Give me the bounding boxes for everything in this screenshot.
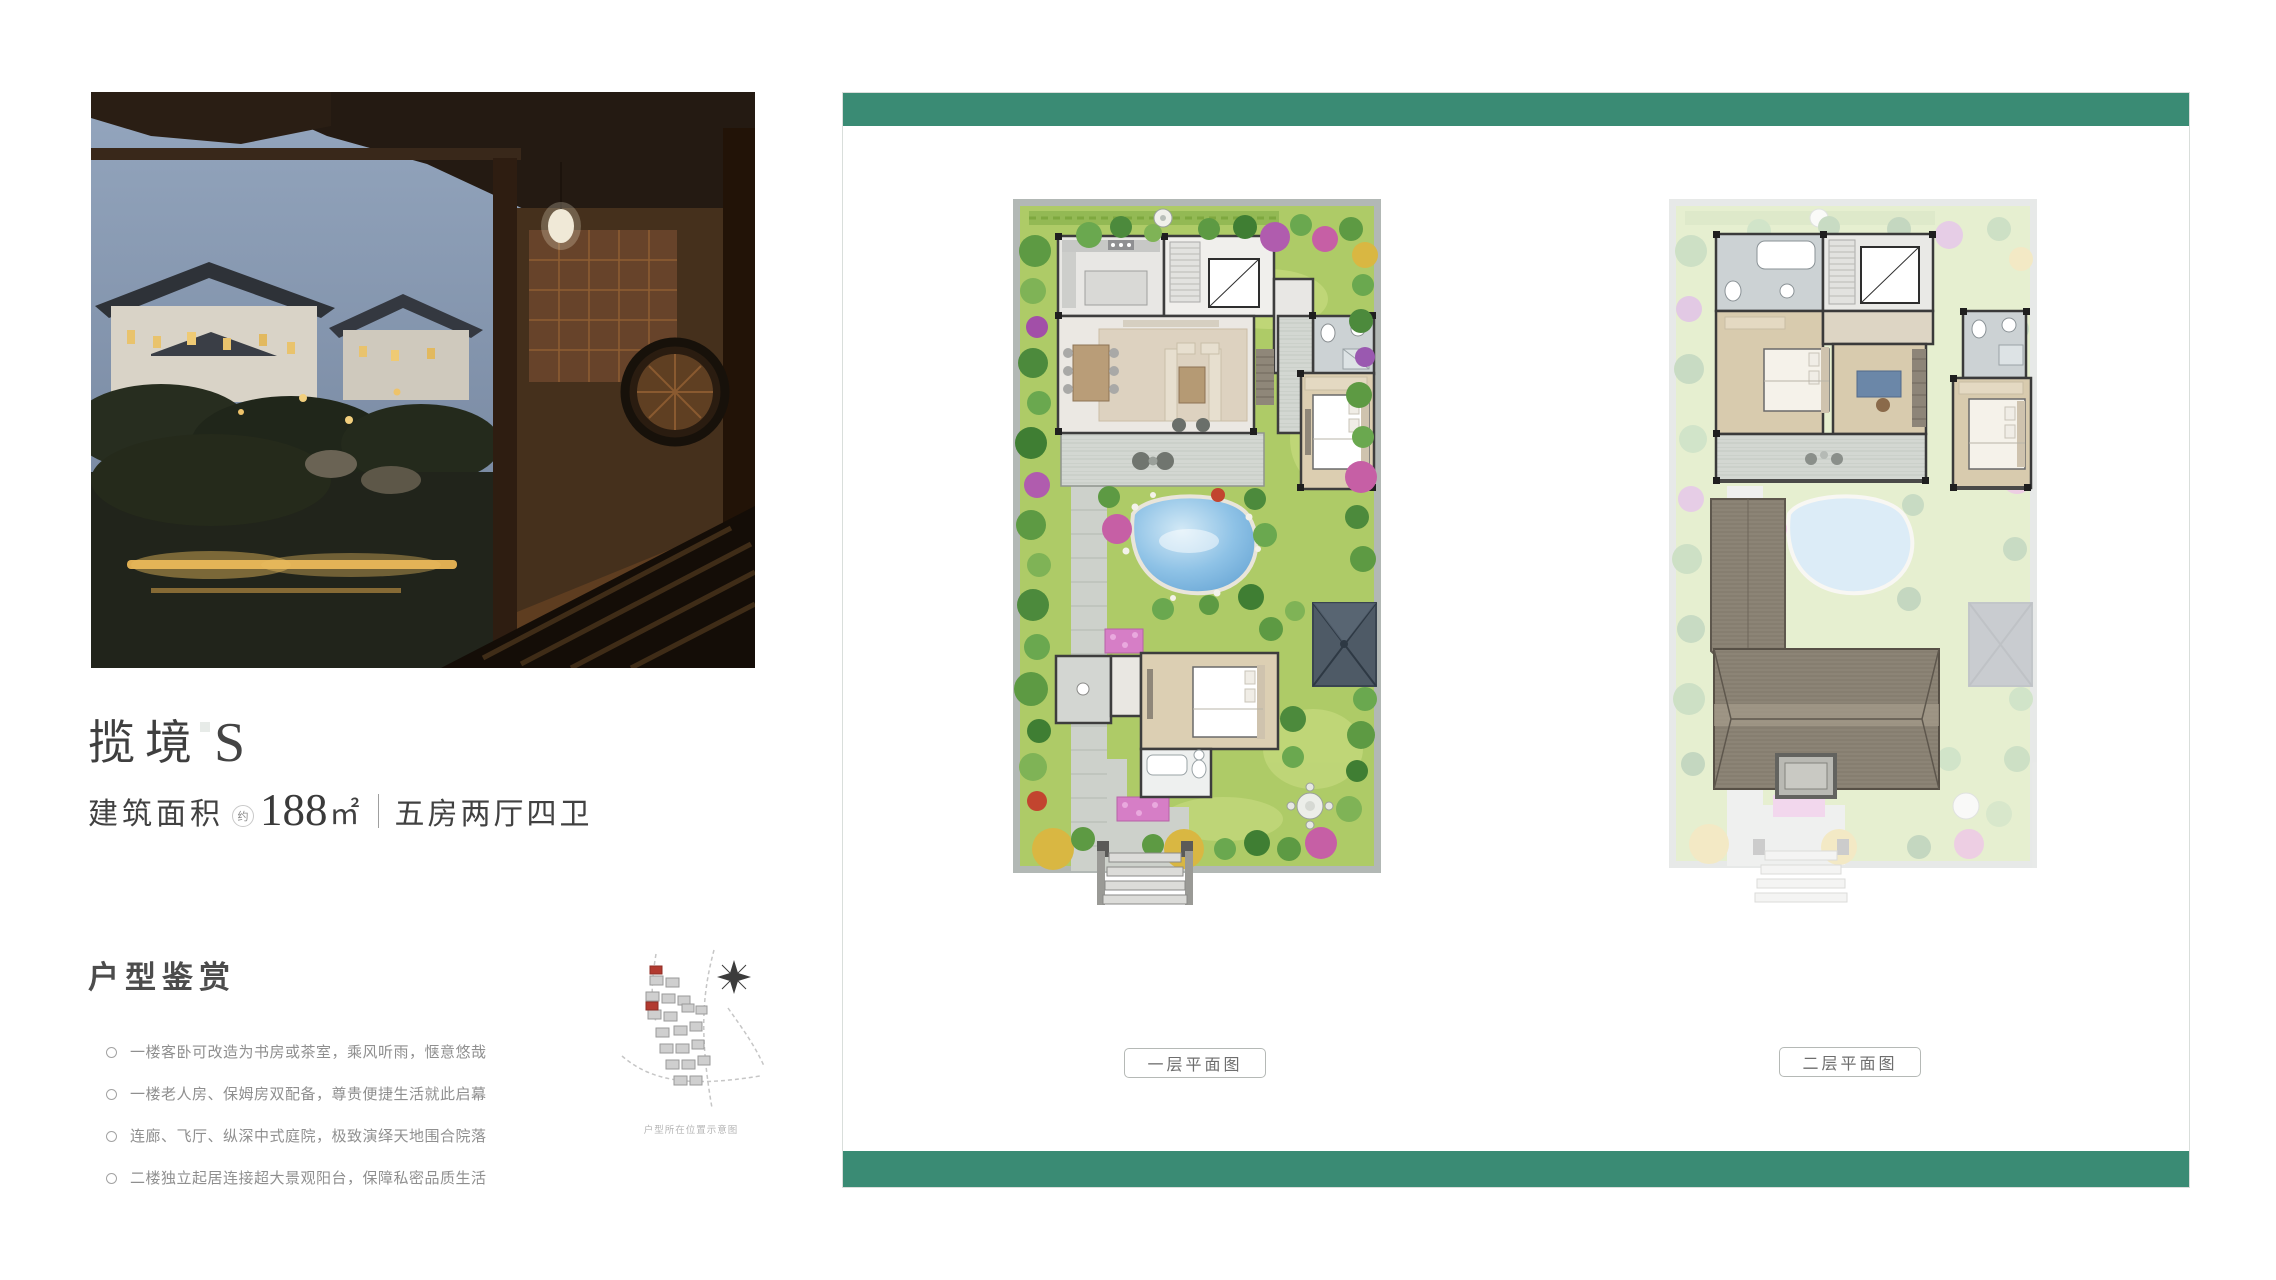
feature-bullet: 一楼老人房、保姆房双配备，尊贵便捷生活就此启幕 bbox=[106, 1084, 536, 1126]
second-floor-plan-drawing bbox=[1669, 199, 2037, 906]
spec-line: 建筑面积 约 188 ㎡ 五房两厅四卫 bbox=[88, 788, 593, 833]
feature-bullet-text: 一楼客卧可改造为书房或茶室，乘风听雨，惬意悠哉 bbox=[130, 1042, 487, 1063]
second-floor-plan-label-text: 二层平面图 bbox=[1802, 1050, 1897, 1074]
compass-icon bbox=[717, 960, 751, 994]
feature-bullet-text: 连廊、飞厅、纵深中式庭院，极致演绎天地围合院落 bbox=[130, 1126, 487, 1147]
sitemap-diagram bbox=[616, 948, 766, 1116]
feature-list: 一楼客卧可改造为书房或茶室，乘风听雨，惬意悠哉 一楼老人房、保姆房双配备，尊贵便… bbox=[106, 1042, 536, 1210]
title-suffix: S bbox=[214, 718, 245, 768]
spec-divider bbox=[378, 794, 379, 828]
terrace bbox=[1061, 433, 1264, 486]
second-floor-plan bbox=[1669, 199, 2037, 906]
panel-top-bar bbox=[843, 93, 2189, 126]
area-unit: ㎡ bbox=[330, 789, 360, 833]
title-text: 揽境 bbox=[88, 721, 202, 768]
feature-bullet-text: 二楼独立起居连接超大景观阳台，保障私密品质生活 bbox=[130, 1168, 487, 1189]
approx-mark: 约 bbox=[232, 805, 254, 827]
first-floor-plan bbox=[1013, 199, 1381, 911]
bullet-circle-icon bbox=[106, 1131, 117, 1142]
brochure-page: 揽境 S 建筑面积 约 188 ㎡ 五房两厅四卫 户型鉴赏 一楼客卧可改造为书房… bbox=[0, 0, 2276, 1280]
property-photo bbox=[91, 92, 755, 668]
location-sitemap: 户型所在位置示意图 bbox=[616, 948, 766, 1136]
feature-bullet-text: 一楼老人房、保姆房双配备，尊贵便捷生活就此启幕 bbox=[130, 1084, 487, 1105]
feature-bullet: 二楼独立起居连接超大景观阳台，保障私密品质生活 bbox=[106, 1168, 536, 1210]
sitemap-caption: 户型所在位置示意图 bbox=[616, 1122, 766, 1136]
room-layout: 五房两厅四卫 bbox=[395, 789, 593, 833]
floorplan-panel: 一层平面图 二层平面图 bbox=[842, 92, 2190, 1188]
feature-bullet: 一楼客卧可改造为书房或茶室，乘风听雨，惬意悠哉 bbox=[106, 1042, 536, 1084]
bullet-circle-icon bbox=[106, 1173, 117, 1184]
area-value: 188 bbox=[260, 788, 328, 833]
first-floor-plan-label-text: 一层平面图 bbox=[1147, 1051, 1242, 1075]
title-mark bbox=[200, 722, 210, 732]
spec-label: 建筑面积 bbox=[88, 789, 224, 833]
courtyard-night-photo bbox=[91, 92, 755, 668]
first-floor-plan-label: 一层平面图 bbox=[1124, 1048, 1266, 1078]
panel-bottom-bar bbox=[843, 1151, 2189, 1187]
feature-bullet: 连廊、飞厅、纵深中式庭院，极致演绎天地围合院落 bbox=[106, 1126, 536, 1168]
second-floor-plan-label: 二层平面图 bbox=[1779, 1047, 1921, 1077]
bullet-circle-icon bbox=[106, 1047, 117, 1058]
bullet-circle-icon bbox=[106, 1089, 117, 1100]
gazebo-roof bbox=[1313, 603, 1376, 686]
page-title: 揽境 S bbox=[88, 702, 245, 768]
first-floor-plan-drawing bbox=[1013, 199, 1381, 911]
section-heading: 户型鉴赏 bbox=[88, 952, 236, 997]
